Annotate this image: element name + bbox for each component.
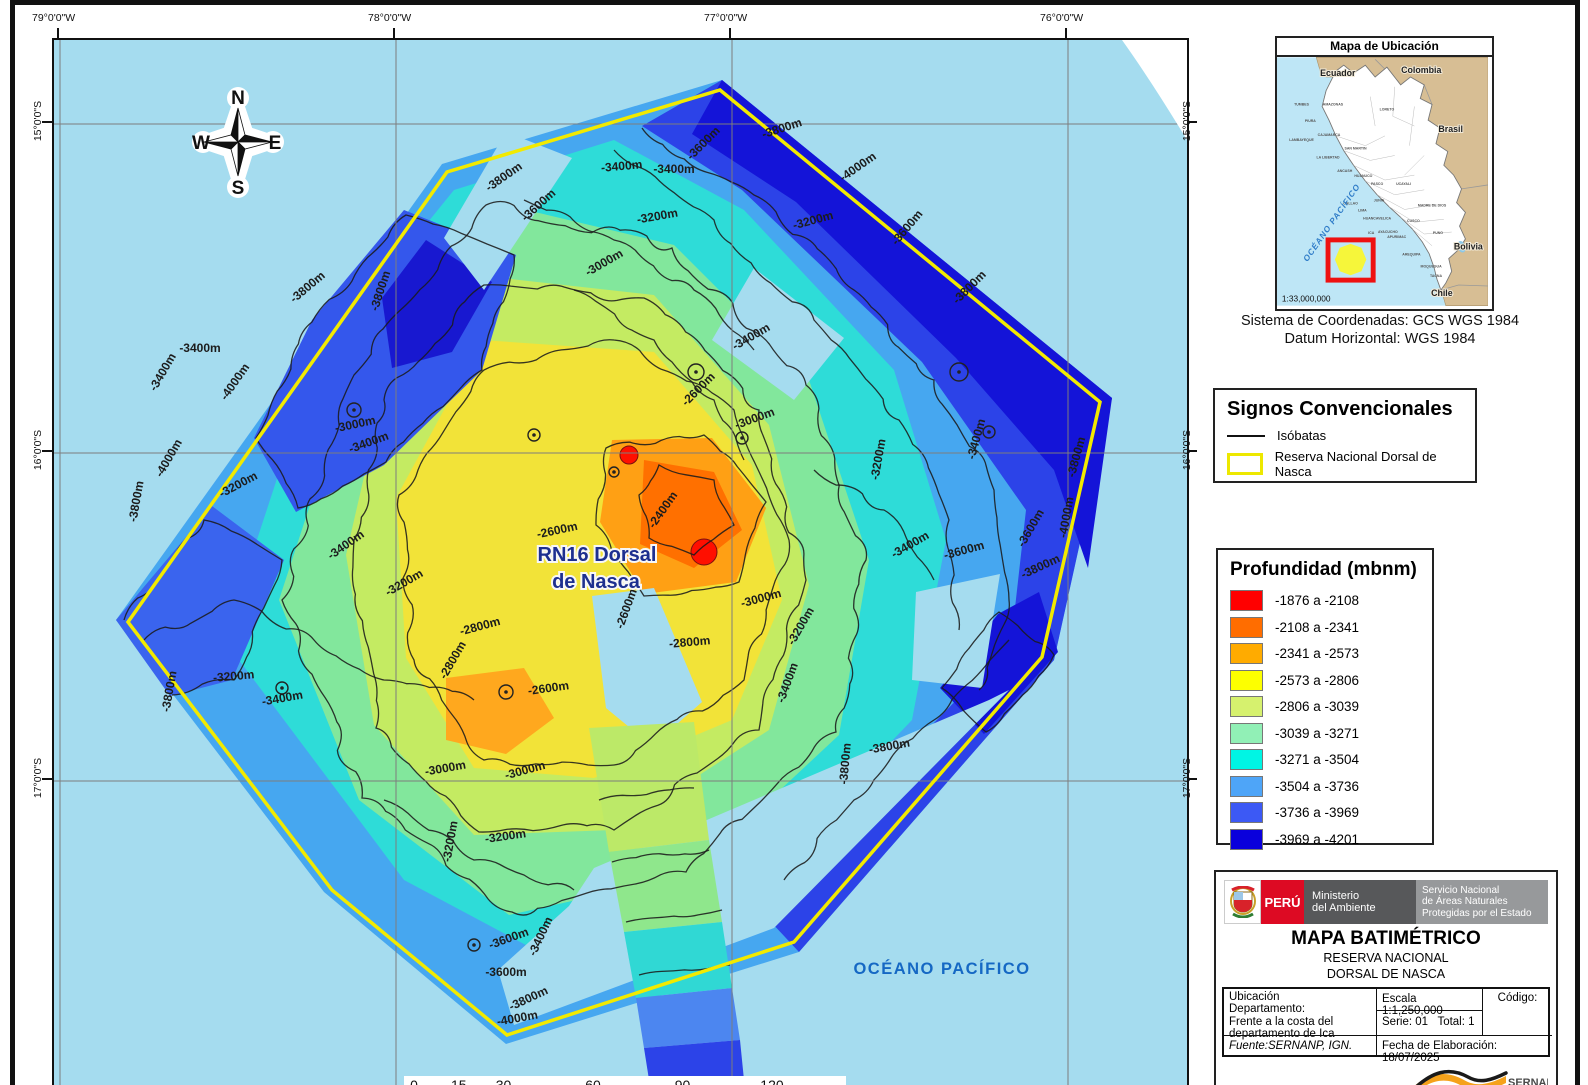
graticule-tick [42,121,52,123]
department-label: TUMBES [1294,102,1309,106]
depth-class-label: -2806 a -3039 [1275,699,1359,714]
department-label: TACNA [1430,274,1443,278]
compass-w-label: W [192,133,210,154]
map-subtitle2: DORSAL DE NASCA [1216,967,1556,981]
depth-class-row: -3271 a -3504 [1230,749,1420,770]
isobath-value-label: -3400m [179,341,220,355]
country-label: Chile [1431,288,1453,298]
sernanp-logo-text: SERNANP [1508,1077,1548,1085]
survey-strip [624,922,732,998]
inset-title: Mapa de Ubicación [1277,38,1492,57]
department-label: LIMA [1358,208,1367,212]
depth-class-swatch [1230,776,1263,797]
isobath-value-label: -3800m [287,268,328,305]
seamount-peak [280,686,284,690]
symbols-legend: Signos Convencionales Isóbatas Reserva N… [1213,388,1477,483]
seamount-peak [694,370,698,374]
total-label: Total: [1437,1016,1465,1028]
depth-class-swatch [1230,696,1263,717]
institution-band: PERÚ Ministerio del Ambiente Servicio Na… [1224,880,1548,924]
serie-value: 01 [1415,1016,1428,1028]
country-label: Brasil [1438,124,1463,134]
crs-line2: Datum Horizontal: WGS 1984 [1190,330,1570,348]
scalebar-tick-label: 120 [760,1077,783,1085]
source-cell: Fuente:SERNANP, IGN. [1224,1035,1377,1056]
service-line3: Protegidas por el Estado [1422,908,1548,920]
seamount-peak [740,436,744,440]
scalebar-tick-label: 0 [410,1077,418,1085]
inset-scale-label: 1:33,000,000 [1282,294,1331,304]
department-label: UCAYALI [1396,182,1411,186]
depth-class-label: -2108 a -2341 [1275,620,1359,635]
depth-class-row: -2806 a -3039 [1230,696,1420,717]
service-cell: Servicio Nacional de Áreas Naturales Pro… [1416,880,1548,924]
depth-legend-rows: -1876 a -2108-2108 a -2341-2341 a -2573-… [1230,590,1420,850]
depth-class-row: -2108 a -2341 [1230,617,1420,638]
depth-class-swatch [1230,829,1263,850]
scale-bar: 015306090120Kilómetros [404,1076,846,1085]
lon-label-top: 76°0'0"W [1040,12,1083,24]
crs-note: Sistema de Coordenadas: GCS WGS 1984 Dat… [1190,312,1570,348]
scalebar-tick-label: 60 [585,1077,601,1085]
scalebar-tick-label: 30 [496,1077,512,1085]
map-subtitle1: RESERVA NACIONAL [1216,951,1556,965]
isobath-value-label: -4000m [217,361,252,403]
map-sheet: -3800m-3600m-3400m-3800m-3600m-3400m-320… [0,0,1588,1085]
graticule-tick [1065,28,1067,38]
depth-class-label: -3969 a -4201 [1275,832,1359,847]
seamount-peak [612,470,616,474]
graticule-tick [1187,450,1197,452]
department-label: LORETO [1380,107,1395,111]
legend-item-isobaths: Isóbatas [1227,428,1463,443]
reserve-name-label: de Nasca [552,571,641,593]
survey-strip [636,988,740,1048]
department-label: MADRE DE DIOS [1418,204,1447,208]
graticule-tick [1187,778,1197,780]
depth-legend-title: Profundidad (mbnm) [1230,559,1420,581]
legend-item-reserve: Reserva Nacional Dorsal de Nasca [1227,449,1463,479]
seamount-peak [957,370,961,374]
metadata-table: Ubicación Departamento: Frente a la cost… [1222,987,1550,1057]
department-label: AYACUCHO [1378,230,1398,234]
scale-cell: Escala 1:1,250,000 [1377,989,1483,1011]
isobath-value-label: -3600m [485,965,526,979]
department-label: ANCASH [1337,169,1353,173]
zone-red [691,539,717,565]
department-label: PIURA [1305,119,1316,123]
compass-n-label: N [231,88,245,109]
reserve-marker-shape [1335,244,1366,275]
graticule-tick [393,28,395,38]
symbols-legend-title: Signos Convencionales [1227,398,1463,421]
peru-coat-of-arms-icon [1224,880,1261,924]
department-label: MOQUEGUA [1421,264,1443,268]
zone-red [620,446,638,464]
department-label: HUANCAVELICA [1363,216,1391,220]
isobath-label: Isóbatas [1277,428,1326,443]
department-label: ICA [1368,231,1375,235]
sernanp-logo: SERNANP PERÚ [1408,1064,1548,1085]
reserve-label: Reserva Nacional Dorsal de Nasca [1275,449,1463,479]
location-inset: Mapa de Ubicación TUMBESAMAZONASLORETOPI… [1275,36,1494,311]
date-cell: Fecha de Elaboración: 18/07/2025 [1377,1035,1552,1056]
country-label: Colombia [1401,65,1441,75]
reserve-name-label: RN16 Dorsal [538,544,657,566]
graticule-tick [57,28,59,38]
isobath-value-label: -4000m [837,149,879,184]
depth-class-label: -3039 a -3271 [1275,726,1359,741]
serie-label: Serie: [1382,1016,1412,1028]
reserve-boundary-swatch [1227,453,1263,475]
depth-class-row: -2573 a -2806 [1230,670,1420,691]
ministry-cell: Ministerio del Ambiente [1304,880,1416,924]
scalebar-tick-label: 90 [675,1077,691,1085]
seamount-peak [472,943,476,947]
depth-class-label: -3736 a -3969 [1275,805,1359,820]
department-label: HUANUCO [1354,174,1372,178]
peru-wordmark: PERÚ [1261,880,1304,924]
depth-class-swatch [1230,617,1263,638]
ministry-line1: Ministerio [1312,890,1416,903]
department-label: PASCO [1371,182,1384,186]
raster-edge-cutout [1122,40,1187,140]
department-label: LAMBAYEQUE [1289,138,1314,142]
depth-class-swatch [1230,590,1263,611]
depth-class-row: -3736 a -3969 [1230,802,1420,823]
compass-e-label: E [269,133,282,154]
graticule-tick [42,778,52,780]
department-label: CUSCO [1407,219,1420,223]
depth-class-label: -3271 a -3504 [1275,752,1359,767]
compass-s-label: S [232,178,245,199]
depth-class-label: -1876 a -2108 [1275,593,1359,608]
graticule-tick [729,28,731,38]
isobath-value-label: -4000m [152,437,185,480]
map-title: MAPA BATIMÉTRICO [1216,928,1556,950]
lon-label-top: 77°0'0"W [704,12,747,24]
seamount-peak [504,690,508,694]
code-cell: Código: [1483,989,1552,1035]
ministry-line2: del Ambiente [1312,902,1416,915]
depth-class-row: -2341 a -2573 [1230,643,1420,664]
depth-class-swatch [1230,802,1263,823]
lon-label-top: 79°0'0"W [32,12,75,24]
isobath-value-label: -3400m [653,162,694,176]
graticule-tick [1187,121,1197,123]
isobath-line-swatch [1227,435,1265,437]
depth-class-swatch [1230,643,1263,664]
escala-label: Escala [1382,993,1417,1005]
depth-class-label: -2573 a -2806 [1275,673,1359,688]
seamount-peak [987,430,991,434]
lon-label-top: 78°0'0"W [368,12,411,24]
department-label: AMAZONAS [1323,102,1344,106]
depth-class-swatch [1230,723,1263,744]
service-line2: de Áreas Naturales [1422,896,1548,908]
depth-class-row: -3504 a -3736 [1230,776,1420,797]
compass-rose: N S W E [190,84,286,200]
graticule-tick [42,450,52,452]
country-label: Bolivia [1454,242,1483,252]
title-block: PERÚ Ministerio del Ambiente Servicio Na… [1214,870,1558,1085]
seamount-peak [532,433,536,437]
location-cell: Ubicación Departamento: Frente a la cost… [1224,989,1377,1035]
scalebar-tick-label: 15 [451,1077,467,1085]
crs-line1: Sistema de Coordenadas: GCS WGS 1984 [1190,312,1570,330]
isobath-value-label: -3800m [126,480,147,523]
loc-line2: Departamento: [1229,1003,1371,1015]
depth-class-swatch [1230,749,1263,770]
compass-star [204,108,272,176]
total-value: 1 [1468,1016,1474,1028]
department-label: AREQUIPA [1402,253,1421,257]
department-label: APURIMAC [1387,235,1406,239]
service-line1: Servicio Nacional [1422,885,1548,897]
department-label: LA LIBERTAD [1317,155,1341,159]
depth-class-label: -3504 a -3736 [1275,779,1359,794]
depth-class-swatch [1230,670,1263,691]
seamount-peak [352,408,356,412]
depth-class-row: -1876 a -2108 [1230,590,1420,611]
department-label: CAJAMARCA [1318,133,1341,137]
isobath-value-label: -3400m [146,351,179,394]
depth-class-row: -3969 a -4201 [1230,829,1420,850]
loc-line1: Ubicación [1229,991,1371,1003]
series-cell: Serie: 01 Total: 1 [1377,1011,1483,1035]
department-label: SAN MARTIN [1344,147,1367,151]
survey-strip [589,722,709,852]
depth-class-row: -3039 a -3271 [1230,723,1420,744]
country-label: Ecuador [1320,68,1356,78]
peru-inset-svg: TUMBESAMAZONASLORETOPIURALAMBAYEQUECAJAM… [1277,57,1488,306]
depth-class-label: -2341 a -2573 [1275,646,1359,661]
depth-legend: Profundidad (mbnm) -1876 a -2108-2108 a … [1216,548,1434,845]
department-label: PUNO [1433,231,1443,235]
department-label: JUNIN [1374,199,1385,203]
ocean-name-label: OCÉANO PACÍFICO [853,959,1030,978]
